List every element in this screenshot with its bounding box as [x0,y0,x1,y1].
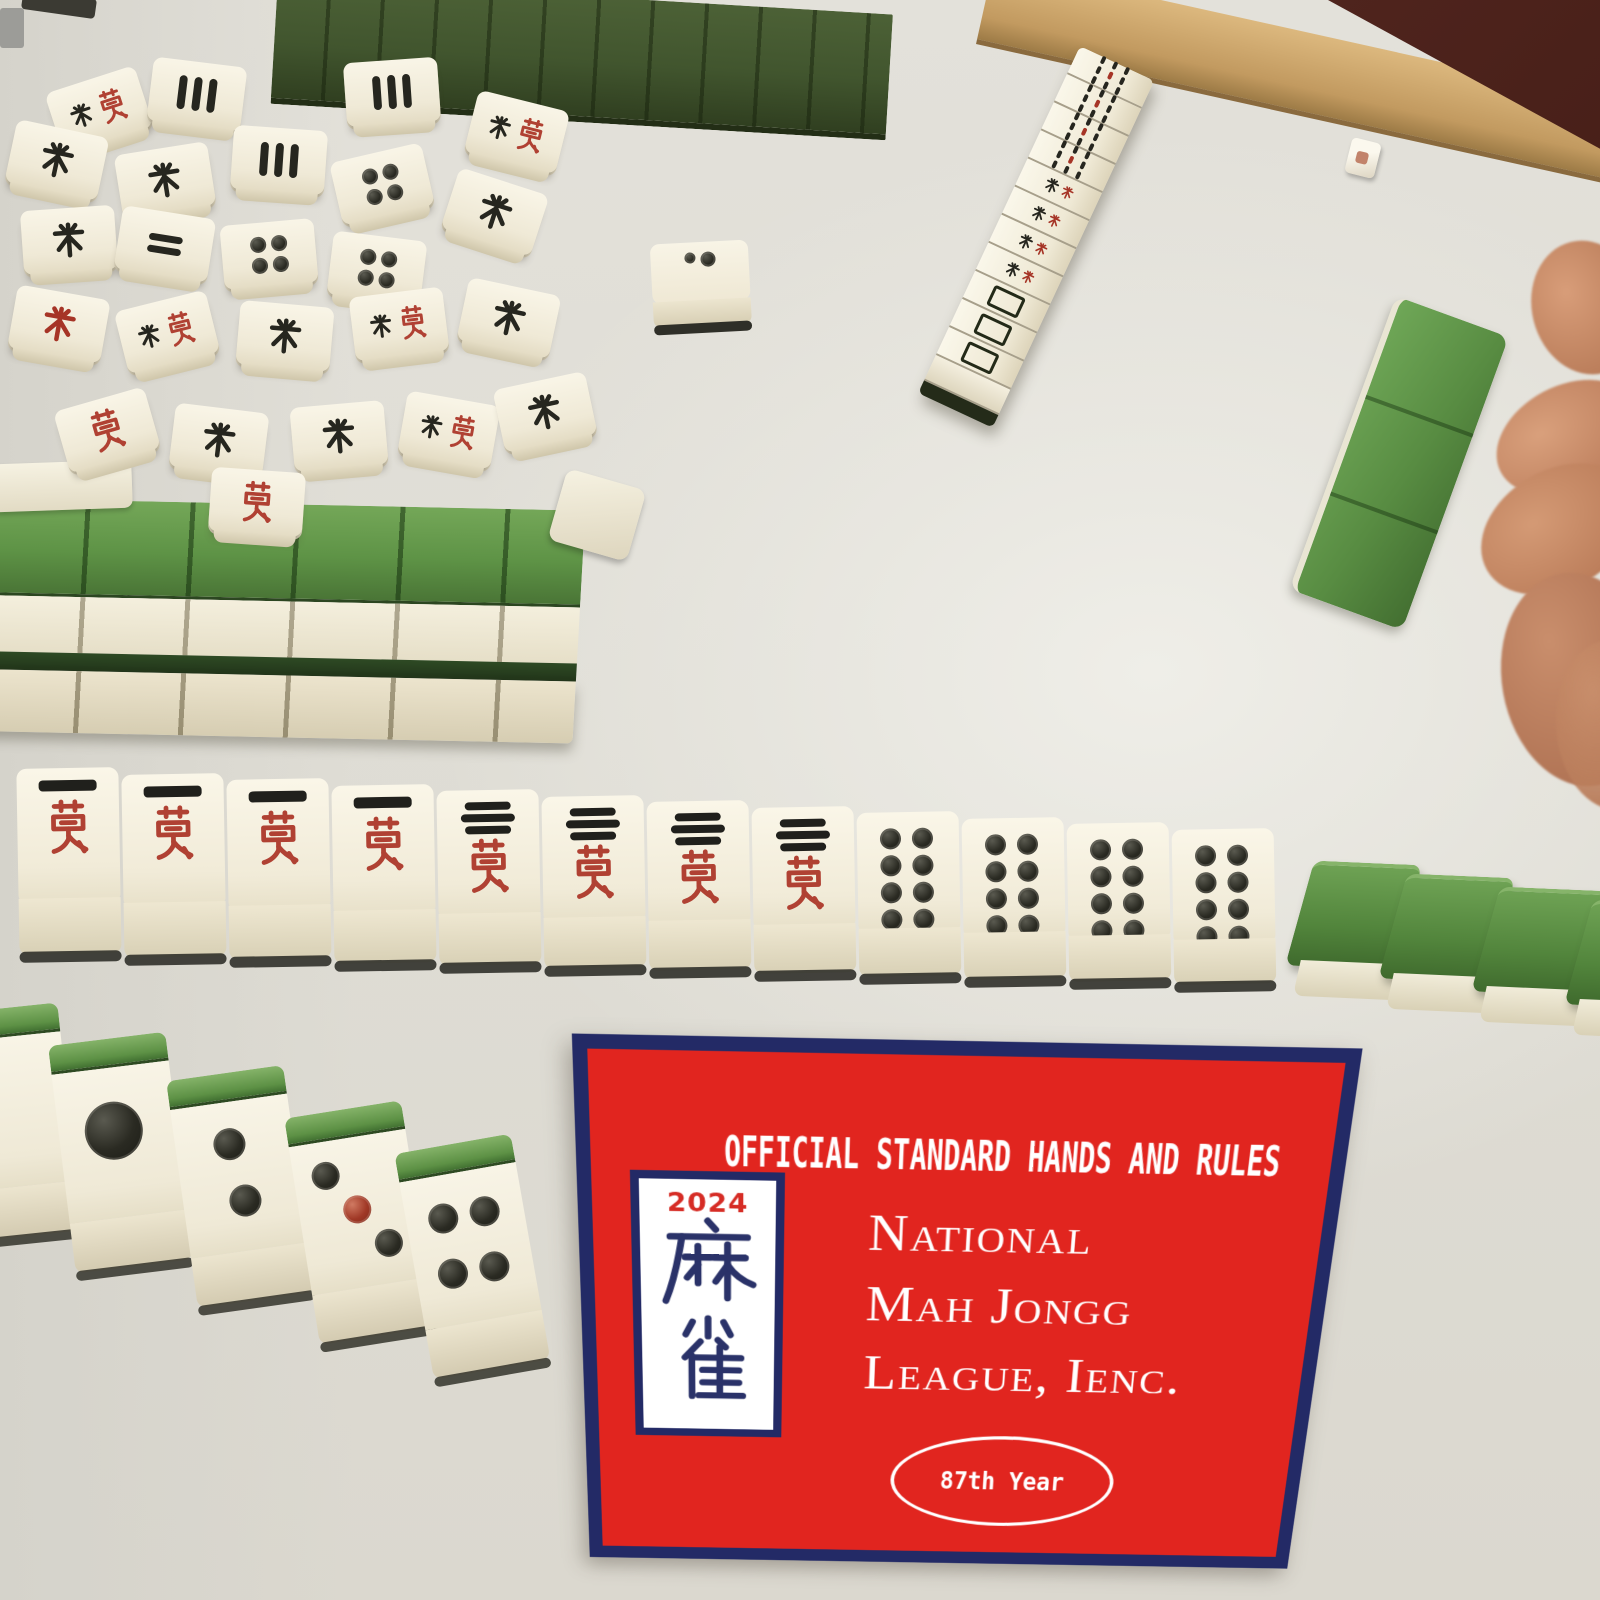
wan-glyph-icon [511,115,550,156]
dot-icon [81,1098,146,1163]
wan-glyph-icon [42,799,95,856]
dots-icon [360,162,404,206]
dot-icon [380,250,398,268]
dot-icon [1195,872,1216,893]
mi-glyph-icon [417,413,445,441]
tile-shadow [544,964,646,977]
wan-glyph-icon [82,404,132,455]
org-name-line2: Mah Jongg [865,1268,1194,1343]
tile-dot [700,251,716,267]
tile-front-edge [544,916,647,969]
wan-glyph-icon [672,849,725,906]
man-number-bar [354,796,412,808]
man-number-bar [249,791,307,803]
mi-glyph-icon [485,113,514,142]
exposed-tile-1-man [121,773,226,966]
mi-glyph-icon [38,303,80,345]
man-number-bar [566,819,620,828]
eight-dots-icon [880,828,938,935]
tile-front-edge [229,904,332,960]
wan-glyph-icon [252,810,305,867]
year-badge-text: 87th Year [939,1466,1065,1497]
tile-face [751,806,855,927]
dot-icon [365,187,384,206]
tile-shadow [124,953,226,966]
dot-icon [880,828,901,849]
dot-icon [227,1182,263,1218]
tile-front-edge [19,897,122,955]
tile-face [857,811,961,930]
dot-icon [426,1201,461,1236]
exposed-tile-3-man [751,806,856,982]
exposed-tile-1-man [331,784,436,971]
man-number-bar [144,785,202,797]
discarded-tile-sticks [343,57,441,127]
dot-icon [881,882,902,903]
dot-icon [380,162,399,181]
tile-front-edge [964,930,1067,979]
dot-icon [249,236,266,253]
tile-shadow [20,950,122,963]
mi-glyph-icon [524,391,567,434]
dot-icon [377,271,395,289]
single-tile-face [650,239,751,304]
man-number-bar [780,842,826,851]
rack-tile-2-dot [166,1065,316,1316]
wan-glyph-icon [161,308,200,349]
eight-dots-icon [1195,844,1253,951]
dot-icon [251,257,268,274]
character-que-icon [659,1306,757,1411]
rack-tile-1-dot [48,1032,194,1282]
two-bars-icon [146,227,184,261]
org-name: National Mah Jongg League, Ienc. [862,1196,1201,1411]
man-number-bar [39,780,97,792]
discarded-tile-sticks [146,57,247,132]
tile-shadow [229,955,331,968]
mi-glyph-icon [135,322,164,351]
card-logo-tile: 2024 [630,1170,785,1438]
tile-front-edge [754,923,857,974]
dot-icon [436,1256,471,1291]
dot-icon [985,861,1006,882]
man-number-bar [675,813,721,822]
mi-glyph-icon [1032,240,1049,257]
tile-shadow [1174,980,1276,993]
wan-glyph-icon [92,85,133,127]
exposed-tile-3-man [541,795,646,977]
tile-shadow [1069,977,1171,990]
mi-glyph-icon [265,316,304,355]
character-pair-icon [417,408,482,452]
mi-glyph-icon [1058,184,1075,201]
exposed-tile-3-man [646,800,751,979]
year-badge: 87th Year [889,1434,1118,1527]
discarded-tile-dots4 [329,142,435,226]
dot-icon [272,255,289,272]
standing-tile-rack [918,46,1154,428]
tile-face [541,795,645,920]
bamboo-icon [372,74,412,111]
org-name-line1: National [867,1196,1202,1274]
dot-icon [1122,866,1143,887]
character-pair-icon [65,85,133,136]
discarded-tile-dots4 [219,218,318,290]
tile-dot [684,252,696,264]
dot-icon [986,888,1007,909]
wan-glyph-icon [462,838,515,895]
tile-front-edge [1572,999,1600,1039]
discarded-tile-duo-red [464,90,571,175]
dots-icon [356,247,397,288]
mi-glyph-icon [1045,212,1062,229]
card-title: OFFICIAL STANDARD HANDS AND RULES [724,1126,1201,1184]
dot-icon [467,1194,502,1229]
tile-face [121,773,225,905]
exposed-tile-8-dot [1172,828,1277,993]
discarded-tile-duo-red [348,287,449,362]
wan-glyph-icon [357,815,410,872]
dot-icon [1227,871,1248,892]
man-number-bar [675,837,721,846]
dot-icon [1090,866,1111,887]
dot-icon [360,167,379,186]
tile-face [331,784,435,912]
discarded-tiles-jumble [0,0,700,620]
tile-face [399,1162,541,1330]
eight-dots-icon [985,833,1043,940]
wan-glyph-icon [147,804,200,861]
tile-face [646,800,750,923]
eight-dots-icon [1090,839,1148,946]
dot-icon [310,1160,342,1192]
finger [1517,229,1600,387]
mi-glyph-icon [36,139,79,182]
dot-icon [1018,887,1039,908]
tile-shadow [649,966,751,979]
man-number-bar [465,802,511,811]
tile-front-edge [1174,938,1277,985]
mi-glyph-icon [199,420,239,460]
man-number-bar [461,814,515,823]
rack-tile-4-dot [394,1134,551,1388]
wall-lower-tier [0,669,576,744]
mi-glyph-icon [472,189,517,234]
wan-glyph-icon [444,413,481,452]
dot-icon [1017,833,1038,854]
dot-icon [373,1227,405,1259]
mi-glyph-icon [488,297,531,340]
discarded-tile-mi-black [168,403,269,478]
tile-front-edge [859,927,962,977]
exposed-tile-8-dot [962,817,1067,988]
discarded-tile-duo-red [114,290,221,375]
dot-icon [1228,898,1249,919]
man-number-bar [570,807,616,816]
tile-face [436,789,540,916]
discarded-tile-wan-red [53,386,161,473]
mi-glyph-icon [144,159,185,200]
mahjong-table-photo: OFFICIAL STANDARD HANDS AND RULES 2024 N… [0,0,1600,1600]
mi-glyph-icon [67,100,97,130]
tile-shadow [334,958,436,971]
die [1344,137,1382,179]
dot-icon [985,834,1006,855]
exposed-tile-8-dot [857,811,962,984]
dots-icon [249,234,289,274]
discarded-tile-mi-black [235,300,334,372]
mi-glyph-icon [50,221,88,259]
discarded-tile-mi-red [7,284,111,363]
tile-front-edge [334,908,437,963]
dot-icon [912,855,933,876]
rules-card: OFFICIAL STANDARD HANDS AND RULES 2024 N… [572,1033,1363,1568]
character-pair-icon [484,108,550,156]
discarded-tile-mi-black [456,277,561,359]
character-pair-icon [134,308,200,356]
exposed-tile-8-dot [1067,822,1172,990]
tile-front-edge [1069,934,1172,982]
bamboo-icon [176,75,218,113]
mi-glyph-icon [319,416,358,455]
org-name-line3: League, Ienc. [862,1338,1185,1411]
man-number-bar [465,826,511,835]
discarded-tile-sticks [230,125,328,195]
dot-icon [1195,845,1216,866]
dot-icon [385,182,404,201]
tile-front-edge [649,919,752,971]
tile-shadow [754,969,856,982]
tile-face [16,767,120,901]
wan-glyph-icon [236,480,279,525]
tile-face [226,778,330,908]
exposed-tile-3-man [436,789,541,974]
tile-shadow [439,961,541,974]
tile-front-edge [439,912,542,966]
wan-glyph-icon [777,854,830,911]
man-number-bar [671,825,725,834]
discarded-tile-wan-red [208,467,306,537]
dot-icon [359,247,377,265]
rules-card-face: OFFICIAL STANDARD HANDS AND RULES 2024 N… [587,1049,1345,1557]
dot-icon [1090,839,1111,860]
tile-shadow [964,974,1066,987]
tile-front-edge [124,901,227,958]
exposed-tile-1-man [16,767,121,963]
discarded-tile-duo-red [397,390,501,469]
dot-icon [356,268,374,286]
tile-shadow [859,972,961,985]
tile-face [1067,822,1171,938]
dot-icon [880,855,901,876]
bamboo-icon [259,142,299,179]
tile-face [962,817,1066,935]
mi-glyph-icon [368,313,395,340]
dot-icon [912,828,933,849]
logo-year: 2024 [667,1186,749,1219]
dot-icon [1091,893,1112,914]
red-dot-icon [341,1193,373,1225]
wan-glyph-icon [567,843,620,900]
mi-glyph-icon [1019,268,1036,285]
wan-glyph-icon [395,303,431,341]
man-number-bar [776,830,830,839]
dot-icon [211,1126,247,1162]
dot-icon [270,234,287,251]
exposed-tile-1-man [226,778,331,968]
discarded-tile-mi-black [20,205,118,275]
single-tile [650,239,753,335]
dot-icon [1122,839,1143,860]
tile-face [1172,828,1276,942]
character-pair-icon [367,303,431,344]
dot-icon [1196,899,1217,920]
dot-icon [1017,860,1038,881]
discarded-tile-mi-black [492,371,597,453]
man-number-bar [570,831,616,840]
dot-icon [477,1249,512,1284]
die-pip [1355,150,1370,165]
discarded-tile-bars2 [114,205,217,283]
dot-icon [1123,893,1144,914]
discarded-tile-mi-black [289,400,388,472]
character-ma-icon [658,1215,758,1309]
held-green-tiles [1289,296,1508,630]
man-number-bar [780,818,826,827]
dot-icon [1227,844,1248,865]
dot-icon [913,882,934,903]
